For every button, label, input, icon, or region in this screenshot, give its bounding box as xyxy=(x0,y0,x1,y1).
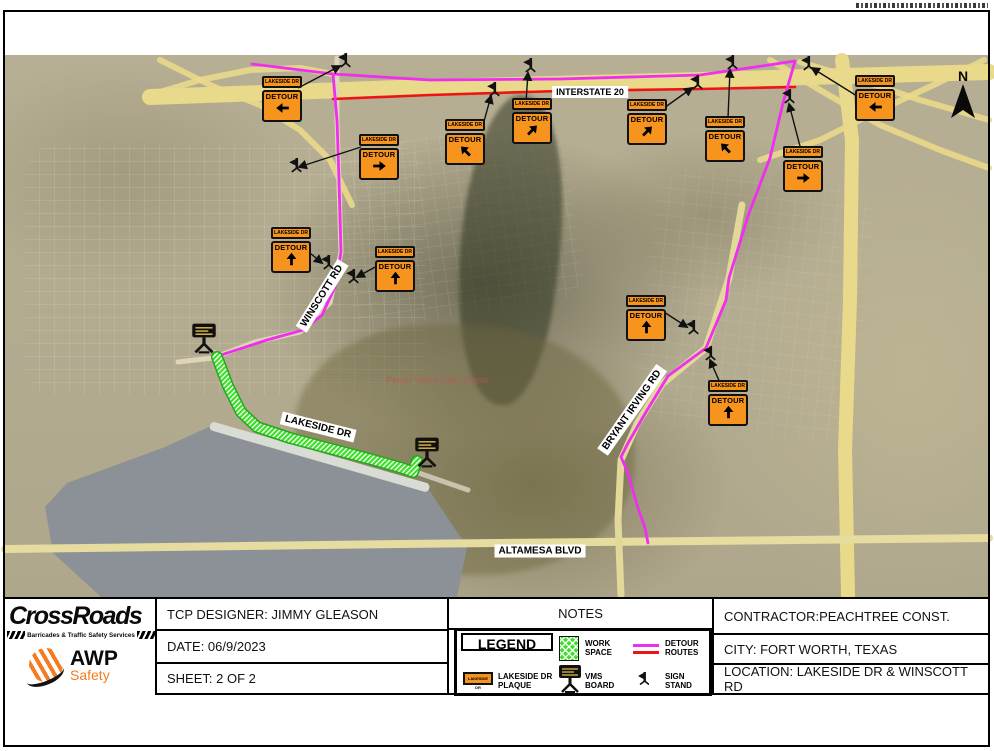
lakeside-dr-plaque: LAKESIDE DR xyxy=(783,146,823,158)
detour-panel: DETOUR xyxy=(626,309,666,341)
detour-panel: DETOUR xyxy=(512,112,552,144)
tcp-plan-sheet: Pecan Valley Golf Course N LAKESIDE DRDE… xyxy=(0,0,994,751)
sign-stand xyxy=(289,158,302,179)
detour-route-pink-icon xyxy=(633,644,659,647)
arrow-up-icon xyxy=(721,405,735,420)
detour-sign-right: LAKESIDE DRDETOUR xyxy=(359,134,399,180)
lakeside-plaque-icon: LAKESIDE DR xyxy=(463,672,493,685)
work-space-swatch-icon xyxy=(559,636,579,661)
suburb-grid xyxy=(632,164,878,446)
lakeside-dr-plaque: LAKESIDE DR xyxy=(271,227,311,239)
crossroads-tagline: Barricades & Traffic Safety Services xyxy=(7,631,155,639)
sign-stand xyxy=(782,89,795,110)
sign-stand xyxy=(523,58,536,79)
golf-course-label: Pecan Valley Golf Course xyxy=(386,375,488,385)
sheet-cell: SHEET: 2 OF 2 xyxy=(155,662,449,695)
detour-route-red-icon xyxy=(633,651,659,654)
sign-stand xyxy=(338,53,351,74)
awp-ball-icon xyxy=(29,648,63,682)
crossroads-logo: CrossRoads xyxy=(9,602,155,631)
arrow-left-icon xyxy=(275,101,290,115)
north-label: N xyxy=(945,68,981,84)
sign-stand xyxy=(703,346,716,367)
sign-stand xyxy=(690,75,703,96)
legend: LEGEND WORK SPACE DETOUR ROUTES LAKESIDE… xyxy=(454,628,712,696)
legend-title: LEGEND xyxy=(461,633,553,651)
date-cell: DATE: 06/9/2023 xyxy=(155,629,449,664)
arrow-left-icon xyxy=(868,100,883,114)
detour-sign-left: LAKESIDE DRDETOUR xyxy=(855,75,895,121)
detour-panel: DETOUR xyxy=(855,89,895,121)
vms-board xyxy=(413,437,441,474)
arrow-up-icon xyxy=(284,252,298,267)
awp-name: AWP xyxy=(70,649,118,668)
arrow-up-icon xyxy=(639,320,653,335)
detour-panel: DETOUR xyxy=(359,148,399,180)
lakeside-dr-plaque: LAKESIDE DR xyxy=(375,246,415,258)
aerial-map xyxy=(5,55,989,597)
lakeside-dr-plaque: LAKESIDE DR xyxy=(708,380,748,392)
arrow-right-icon xyxy=(372,159,387,173)
logo-cell: CrossRoads Barricades & Traffic Safety S… xyxy=(5,597,155,696)
north-arrow-glyph xyxy=(948,84,978,120)
sign-stand xyxy=(725,55,738,76)
notes-header: NOTES xyxy=(447,597,714,630)
work-space-label: WORK SPACE xyxy=(585,639,625,657)
lakeside-dr-plaque: LAKESIDE DR xyxy=(512,98,552,110)
lakeside-dr-plaque: LAKESIDE DR xyxy=(445,119,485,131)
city-cell: CITY: FORT WORTH, TEXAS xyxy=(712,633,990,665)
detour-panel: DETOUR xyxy=(705,130,745,162)
vms-board-icon xyxy=(557,664,583,694)
designer-cell: TCP DESIGNER: JIMMY GLEASON xyxy=(155,597,449,631)
detour-panel: DETOUR xyxy=(262,90,302,122)
sign-stand-icon xyxy=(637,671,649,686)
detour-sign-ne: LAKESIDE DRDETOUR xyxy=(627,99,667,145)
stripes-icon xyxy=(7,631,25,639)
detour-routes-label: DETOUR ROUTES xyxy=(665,639,711,657)
detour-sign-left: LAKESIDE DRDETOUR xyxy=(262,76,302,122)
vms-board-label: VMS BOARD xyxy=(585,672,625,690)
detour-panel: DETOUR xyxy=(271,241,311,273)
north-arrow: N xyxy=(945,68,981,125)
detour-panel: DETOUR xyxy=(627,113,667,145)
sign-stand-label: SIGN STAND xyxy=(665,672,711,690)
road-label: ALTAMESA BLVD xyxy=(495,545,586,558)
detour-sign-right: LAKESIDE DRDETOUR xyxy=(783,146,823,192)
road-label: INTERSTATE 20 xyxy=(552,86,628,98)
contractor-cell: CONTRACTOR:PEACHTREE CONST. xyxy=(712,597,990,635)
lakeside-dr-plaque: LAKESIDE DR xyxy=(262,76,302,88)
lakeside-dr-plaque: LAKESIDE DR xyxy=(855,75,895,87)
arrow-right-icon xyxy=(796,171,811,185)
detour-panel: DETOUR xyxy=(375,260,415,292)
detour-sign-nw: LAKESIDE DRDETOUR xyxy=(705,116,745,162)
awp-safety-logo: AWP Safety xyxy=(29,648,155,682)
sign-stand xyxy=(686,320,699,341)
detour-sign-up: LAKESIDE DRDETOUR xyxy=(271,227,311,273)
detour-panel: DETOUR xyxy=(783,160,823,192)
location-cell: LOCATION: LAKESIDE DR & WINSCOTT RD xyxy=(712,663,990,695)
detour-sign-nw: LAKESIDE DRDETOUR xyxy=(445,119,485,165)
clipped-url-text xyxy=(856,3,988,8)
detour-sign-up: LAKESIDE DRDETOUR xyxy=(375,246,415,292)
lakeside-dr-plaque: LAKESIDE DR xyxy=(626,295,666,307)
lakeside-dr-plaque: LAKESIDE DR xyxy=(627,99,667,111)
lakeside-dr-plaque: LAKESIDE DR xyxy=(705,116,745,128)
detour-sign-ne: LAKESIDE DRDETOUR xyxy=(512,98,552,144)
vms-board xyxy=(190,323,218,360)
lakeside-dr-plaque: LAKESIDE DR xyxy=(359,134,399,146)
detour-panel: DETOUR xyxy=(708,394,748,426)
awp-sub: Safety xyxy=(70,668,118,682)
sign-stand xyxy=(487,82,500,103)
stripes-icon xyxy=(137,631,155,639)
detour-sign-up: LAKESIDE DRDETOUR xyxy=(626,295,666,341)
arrow-up-icon xyxy=(388,271,402,286)
sign-stand xyxy=(801,56,814,77)
detour-sign-up: LAKESIDE DRDETOUR xyxy=(708,380,748,426)
plaque-label: LAKESIDE DR PLAQUE xyxy=(498,672,556,690)
detour-panel: DETOUR xyxy=(445,133,485,165)
sign-stand xyxy=(321,255,334,276)
sign-stand xyxy=(346,269,359,290)
